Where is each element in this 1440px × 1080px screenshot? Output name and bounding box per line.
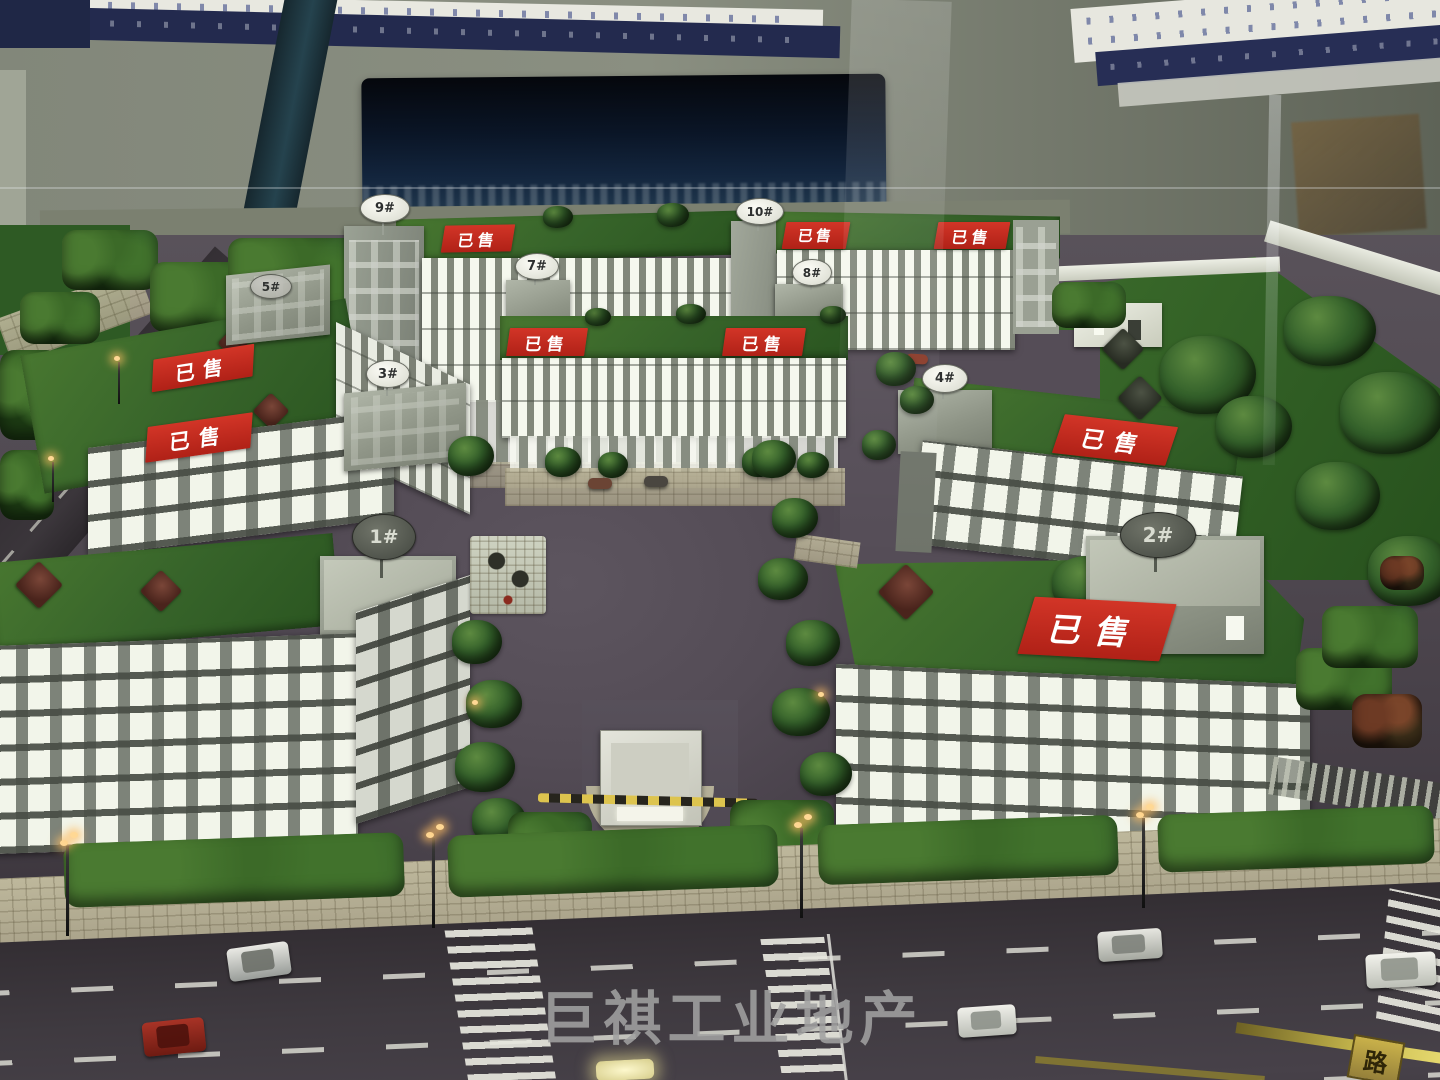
roadside-trees [817,815,1119,885]
street-lamp [432,838,435,928]
car-roof [156,1024,190,1048]
car [1097,928,1163,962]
gatehouse-roof [611,743,689,795]
panda-garden [470,536,546,614]
street-lamp [800,828,803,918]
street-lamp [66,846,69,936]
car-roof [1381,958,1418,981]
red-foliage [1352,694,1422,748]
tree-cluster [20,292,100,344]
street-lamp [1142,818,1145,908]
watermark-text: 巨祺工业地产 [540,972,924,1056]
banner-corner-navy [0,0,90,48]
car [957,1004,1017,1038]
car [1365,951,1437,989]
garden-lamp-glow [818,692,824,697]
sold-sign: 已售 [1017,597,1176,662]
car-roof [240,948,275,973]
wall-corner-highlight [0,70,26,240]
building-tag-1: 1# [352,514,416,560]
building-4-side-face [895,451,936,553]
red-foliage [1380,556,1424,590]
lamp-glow [426,832,434,838]
sold-sign: 已售 [722,328,806,356]
building-tag-2: 2# [1120,512,1196,558]
carton-box-behind-glass [1291,114,1427,238]
building-tag-5: 5# [250,274,292,299]
lamp-glow [114,356,120,361]
small-lamp [52,462,54,502]
sold-sign: 已售 [782,222,851,249]
tower-windows [1016,227,1057,327]
building-tag-10: 10# [736,198,784,225]
building-7-facade [502,358,846,438]
base-edge-glow [596,1058,655,1080]
tree-cluster [1322,606,1418,668]
garden-lamp-glow [472,700,478,705]
penthouse-windows [351,388,458,466]
banner-text-marks [110,20,809,43]
lamp-glow [70,832,78,838]
building-tag-9: 9# [360,194,410,223]
building-1-facade [0,633,358,854]
car-roof [1111,934,1145,955]
gatehouse [600,730,702,826]
sold-sign: 已售 [934,222,1011,249]
lamp-glow [436,824,444,830]
architectural-model-photo: 已售 已售 已售 已售 已售 已售 已售 已售 已售 9# 10# 8# 7# … [0,0,1440,1080]
tree-cluster [62,230,158,290]
roadside-trees [63,832,405,908]
tree-cluster [1052,282,1126,328]
building-tag-8: 8# [792,259,832,286]
penthouse-window [1226,616,1244,640]
car-roof [970,1010,1001,1031]
building-tag-4: 4# [922,364,968,393]
gatehouse-canopy [617,807,683,821]
small-lamp [118,362,120,404]
lamp-glow [804,814,812,820]
lamp-glow [48,456,54,461]
roadside-trees [1157,805,1435,873]
roadside-trees [447,824,779,897]
building-tag-7: 7# [515,253,559,280]
sold-sign: 已售 [441,224,515,252]
sold-sign: 已售 [506,328,588,356]
lamp-glow [1136,812,1144,818]
building-tag-3: 3# [366,360,410,388]
lamp-glow [60,840,68,846]
building-1-side-facade [356,575,470,824]
parked-car [644,476,668,487]
tree [1340,372,1440,454]
road-name-plaque: 路 [1347,1034,1406,1080]
lamp-glow [794,822,802,828]
glass-edge-line [0,187,1440,189]
car [141,1017,206,1057]
parked-car [588,478,612,489]
lamp-glow [1146,804,1154,810]
